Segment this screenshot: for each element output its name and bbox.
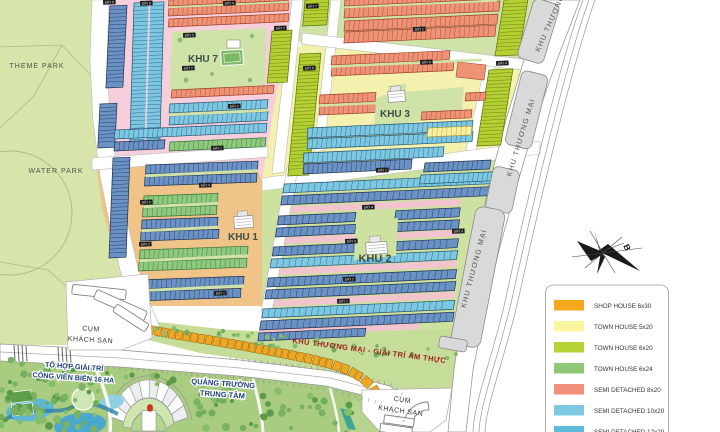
svg-text:KHU 7: KHU 7	[188, 54, 218, 65]
svg-text:DÃY 4: DÃY 4	[364, 204, 374, 209]
svg-text:CỤM: CỤM	[82, 326, 100, 334]
svg-text:TOWN HOUSE 6x20: TOWN HOUSE 6x20	[594, 345, 653, 352]
svg-text:DÃY 4: DÃY 4	[201, 182, 211, 187]
svg-text:B: B	[621, 243, 633, 253]
svg-text:DÃY 1: DÃY 1	[213, 145, 223, 150]
svg-text:DÃY 2: DÃY 2	[184, 65, 194, 70]
svg-text:DÃY 1: DÃY 1	[216, 290, 226, 295]
svg-text:DÃY 3: DÃY 3	[142, 199, 152, 204]
svg-text:DÃY 4: DÃY 4	[498, 60, 508, 65]
svg-text:DÃY 7: DÃY 7	[308, 3, 318, 8]
svg-text:DÃY 5: DÃY 5	[305, 65, 315, 70]
svg-text:KHU 2: KHU 2	[358, 253, 391, 265]
svg-text:TOWN HOUSE 6x24: TOWN HOUSE 6x24	[594, 366, 653, 373]
svg-text:DÃY 5: DÃY 5	[105, 0, 115, 5]
svg-text:DÃY 1: DÃY 1	[415, 26, 425, 31]
svg-text:DÃY 2: DÃY 2	[141, 241, 151, 246]
svg-text:DÃY 3: DÃY 3	[185, 32, 195, 37]
svg-text:TOWN HOUSE 5x20: TOWN HOUSE 5x20	[594, 324, 653, 331]
svg-text:DÃY 3: DÃY 3	[454, 228, 464, 233]
svg-text:DÃY 1: DÃY 1	[339, 298, 349, 303]
svg-text:SEMI DETACHED 8x20: SEMI DETACHED 8x20	[594, 387, 661, 394]
svg-text:DÃY 3: DÃY 3	[347, 238, 357, 243]
svg-text:KHU 3: KHU 3	[380, 109, 410, 120]
svg-text:WATER PARK: WATER PARK	[29, 168, 84, 175]
svg-text:DÃY 2: DÃY 2	[345, 276, 355, 281]
svg-text:SEMI DETACHED 10x20: SEMI DETACHED 10x20	[594, 408, 665, 415]
svg-text:DÃY 7: DÃY 7	[276, 25, 286, 30]
svg-text:DÃY 1: DÃY 1	[378, 167, 388, 172]
svg-text:KHU 1: KHU 1	[228, 232, 258, 243]
svg-text:DÃY 4: DÃY 4	[225, 0, 235, 5]
svg-text:DÃY 6: DÃY 6	[142, 0, 152, 5]
svg-text:DÃY 2: DÃY 2	[230, 103, 240, 108]
svg-text:THEME PARK: THEME PARK	[10, 63, 65, 70]
svg-text:SHOP HOUSE 6x30: SHOP HOUSE 6x30	[594, 303, 652, 310]
svg-text:DÃY 6: DÃY 6	[422, 59, 432, 64]
